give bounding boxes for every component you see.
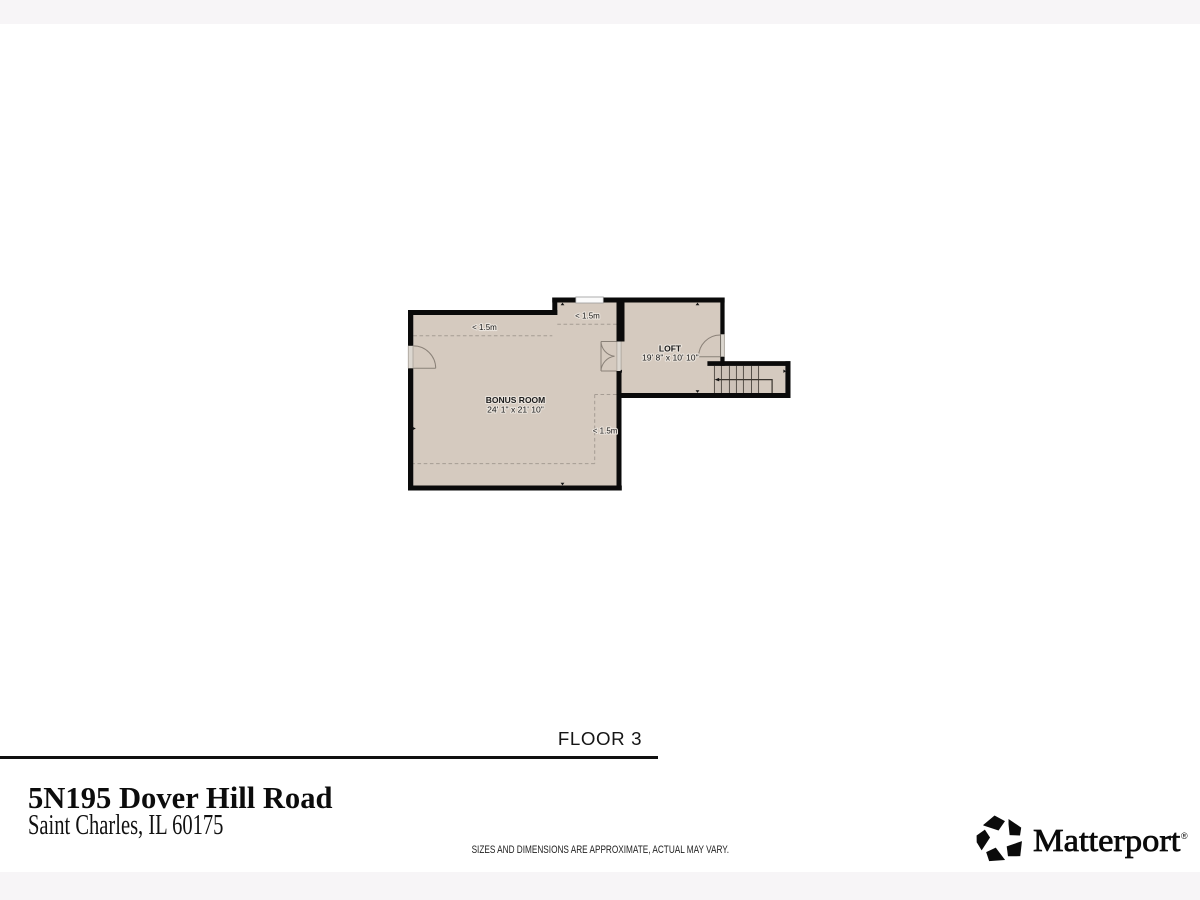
svg-text:24' 1" x 21' 10": 24' 1" x 21' 10" bbox=[487, 404, 544, 414]
svg-text:< 1.5m: < 1.5m bbox=[593, 427, 618, 436]
svg-text:< 1.5m: < 1.5m bbox=[472, 323, 497, 332]
svg-text:19' 8" x 10' 10": 19' 8" x 10' 10" bbox=[642, 352, 699, 362]
svg-text:< 1.5m: < 1.5m bbox=[575, 312, 600, 321]
